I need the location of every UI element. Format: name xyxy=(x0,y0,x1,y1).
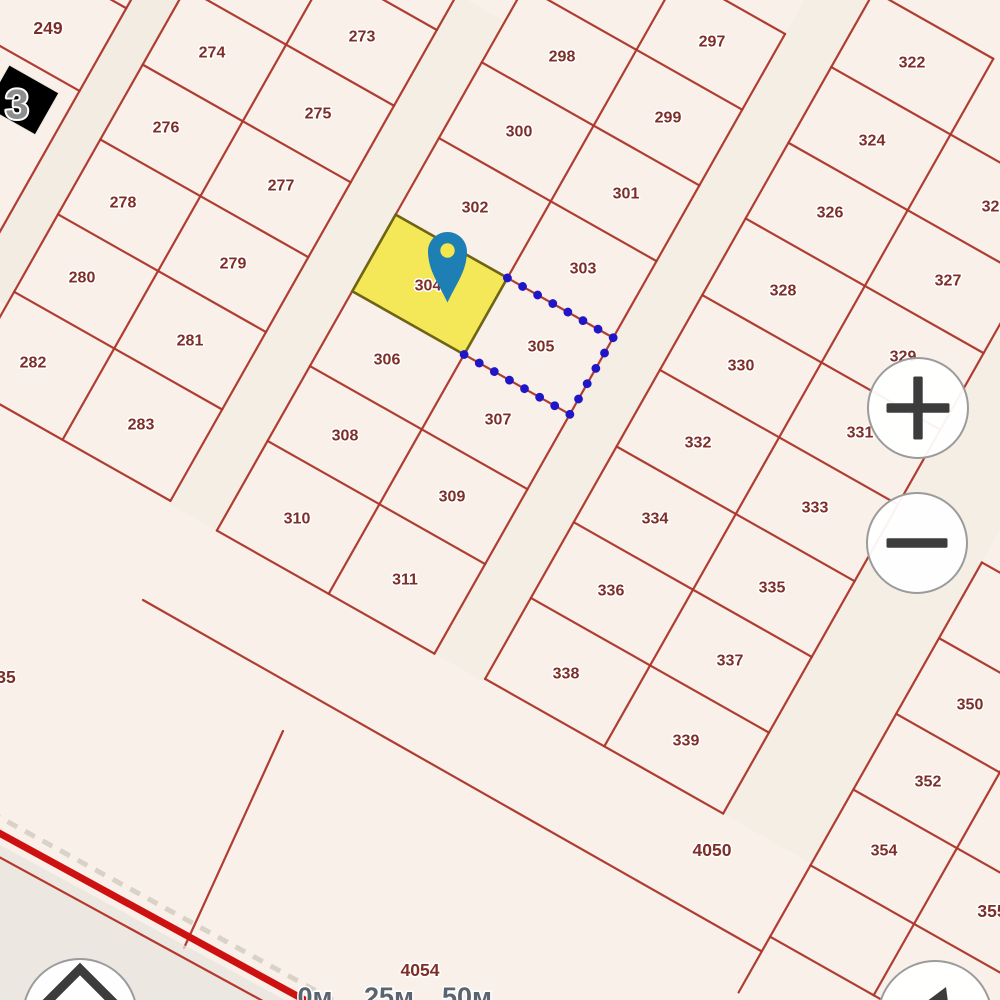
parcel-label-249: 249 xyxy=(33,18,62,38)
parcel-label-283: 283 xyxy=(128,417,155,434)
parcel-label-306: 306 xyxy=(374,352,401,369)
parcel-label-338: 338 xyxy=(553,666,580,683)
district-label: 3 xyxy=(5,81,28,128)
zoom-in-button[interactable] xyxy=(868,358,968,458)
parcel-label-303: 303 xyxy=(570,261,597,278)
parcel-label-326: 326 xyxy=(817,205,844,222)
parcel-label-305: 305 xyxy=(528,339,555,356)
parcel-label-309: 309 xyxy=(439,489,466,506)
parcel-label-275: 275 xyxy=(305,106,332,123)
map-background xyxy=(0,0,1000,1000)
parcel-label-308: 308 xyxy=(332,428,359,445)
map-canvas[interactable]: 2492742732982973222762753002993242782773… xyxy=(0,0,1000,1000)
minus-icon xyxy=(887,538,948,547)
parcel-label-299: 299 xyxy=(655,110,682,127)
parcel-label-281: 281 xyxy=(177,333,204,350)
parcel-label-280: 280 xyxy=(69,270,96,287)
parcel-label-327: 327 xyxy=(935,273,962,290)
parcel-label-307: 307 xyxy=(485,412,512,429)
parcel-label-274: 274 xyxy=(199,45,226,62)
parcel-label-298: 298 xyxy=(549,49,576,66)
parcel-label-278: 278 xyxy=(110,195,137,212)
parcel-label-300: 300 xyxy=(506,124,533,141)
parcel-label-332: 332 xyxy=(685,435,712,452)
parcel-label-324: 324 xyxy=(859,133,886,150)
scale-label: 25м xyxy=(364,982,414,1000)
parcel-label-4054: 4054 xyxy=(401,960,440,980)
parcel-label-322: 322 xyxy=(899,55,926,72)
parcel-label-276: 276 xyxy=(153,120,180,137)
parcel-label-301: 301 xyxy=(613,186,640,203)
parcel-label-297: 297 xyxy=(699,34,726,51)
parcel-label-352: 352 xyxy=(915,774,942,791)
parcel-label-279: 279 xyxy=(220,256,247,273)
parcel-label-282: 282 xyxy=(20,355,47,372)
map-app: 2492742732982973222762753002993242782773… xyxy=(0,0,1000,1000)
parcel-label-339: 339 xyxy=(673,733,700,750)
parcel-label-273: 273 xyxy=(349,29,376,46)
parcel-label-337: 337 xyxy=(717,653,744,670)
parcel-label-333: 333 xyxy=(802,500,829,517)
parcel-label-4050: 4050 xyxy=(693,840,732,860)
parcel-label-325: 325 xyxy=(982,199,1000,216)
parcel-label-355: 355 xyxy=(977,901,1000,921)
parcel-label-334: 334 xyxy=(642,511,669,528)
parcel-label-350: 350 xyxy=(957,697,984,714)
parcel-label-335: 335 xyxy=(759,580,786,597)
parcel-label-331: 331 xyxy=(847,425,874,442)
zoom-out-button[interactable] xyxy=(867,493,967,593)
parcel-label-277: 277 xyxy=(268,178,295,195)
parcel-label-328: 328 xyxy=(770,283,797,300)
parcel-label-311: 311 xyxy=(392,572,418,589)
scale-bar: 0м25м50м xyxy=(298,982,493,1000)
parcel-label-35: 35 xyxy=(0,667,16,687)
scale-label: 0м xyxy=(298,982,333,1000)
parcel-label-336: 336 xyxy=(598,583,625,600)
parcel-label-330: 330 xyxy=(728,358,755,375)
scale-label: 50м xyxy=(442,982,492,1000)
parcel-label-354: 354 xyxy=(871,843,898,860)
parcel-label-302: 302 xyxy=(462,200,489,217)
parcel-label-310: 310 xyxy=(284,511,311,528)
